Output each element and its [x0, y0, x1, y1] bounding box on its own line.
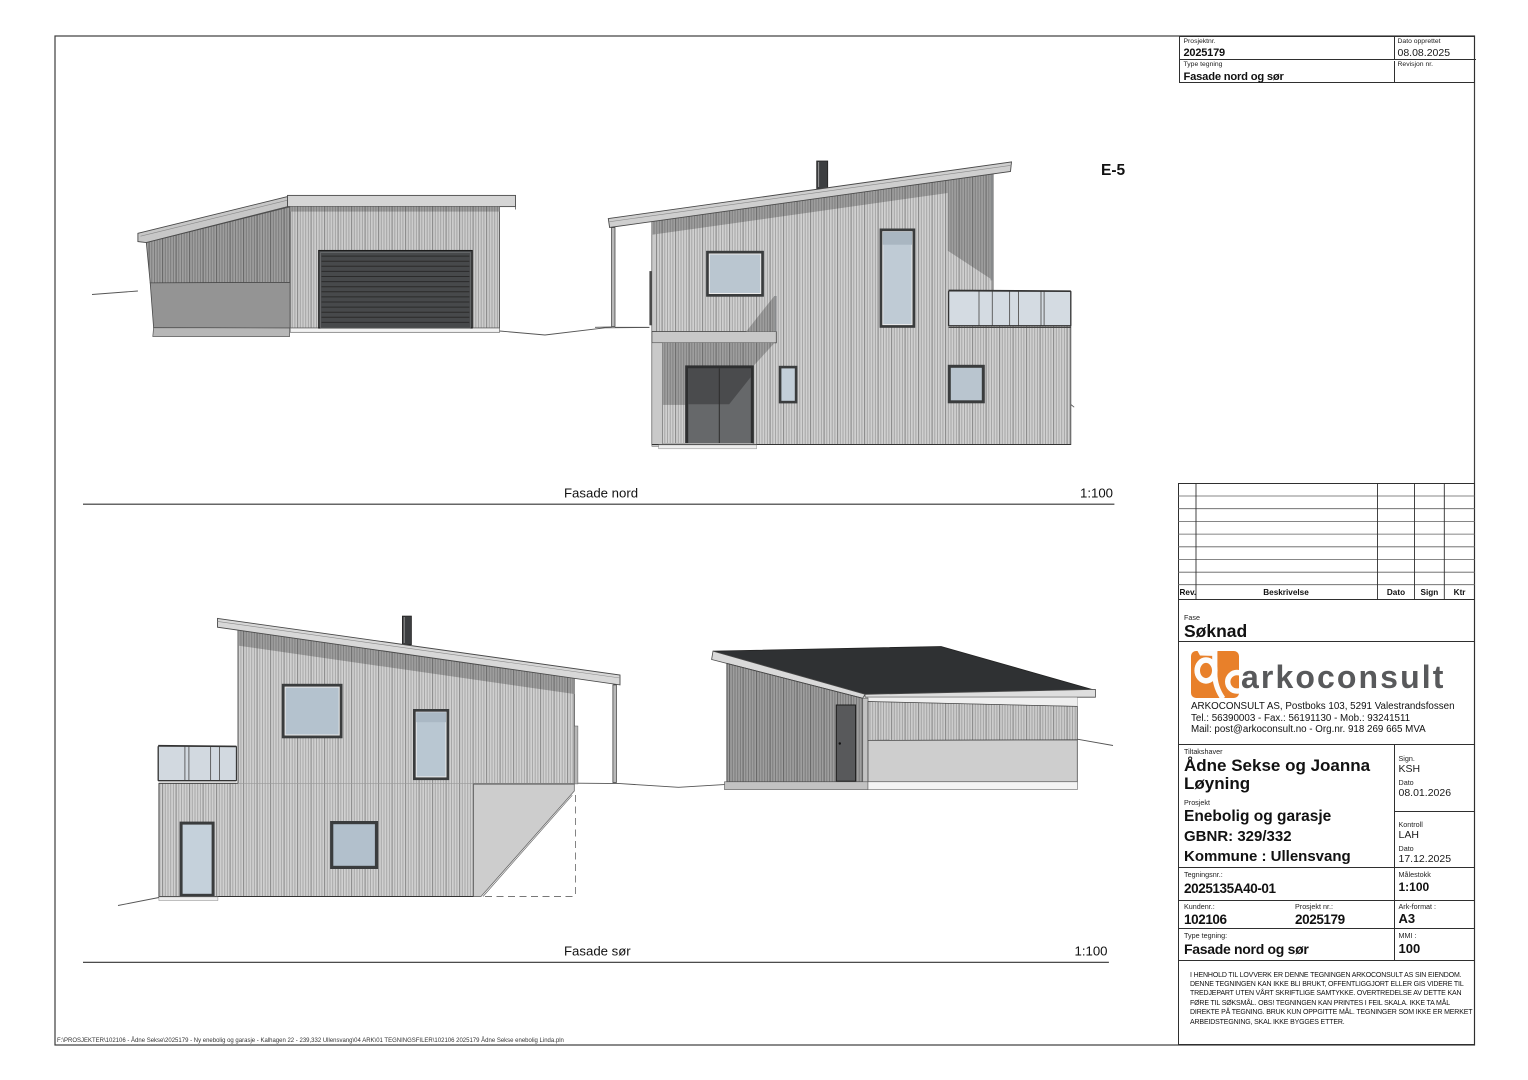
- svg-text:Sign: Sign: [1421, 588, 1439, 597]
- svg-text:Ktr: Ktr: [1454, 588, 1467, 597]
- svg-text:Rev.: Rev.: [1180, 588, 1197, 597]
- svg-text:1:100: 1:100: [1080, 486, 1113, 501]
- svg-text:E-5: E-5: [1101, 162, 1126, 179]
- svg-text:Fasade nord: Fasade nord: [564, 486, 638, 501]
- svg-text:Dato: Dato: [1387, 588, 1405, 597]
- svg-text:Fasade sør: Fasade sør: [564, 944, 631, 959]
- svg-text:Beskrivelse: Beskrivelse: [1263, 588, 1309, 597]
- svg-text:1:100: 1:100: [1074, 944, 1107, 959]
